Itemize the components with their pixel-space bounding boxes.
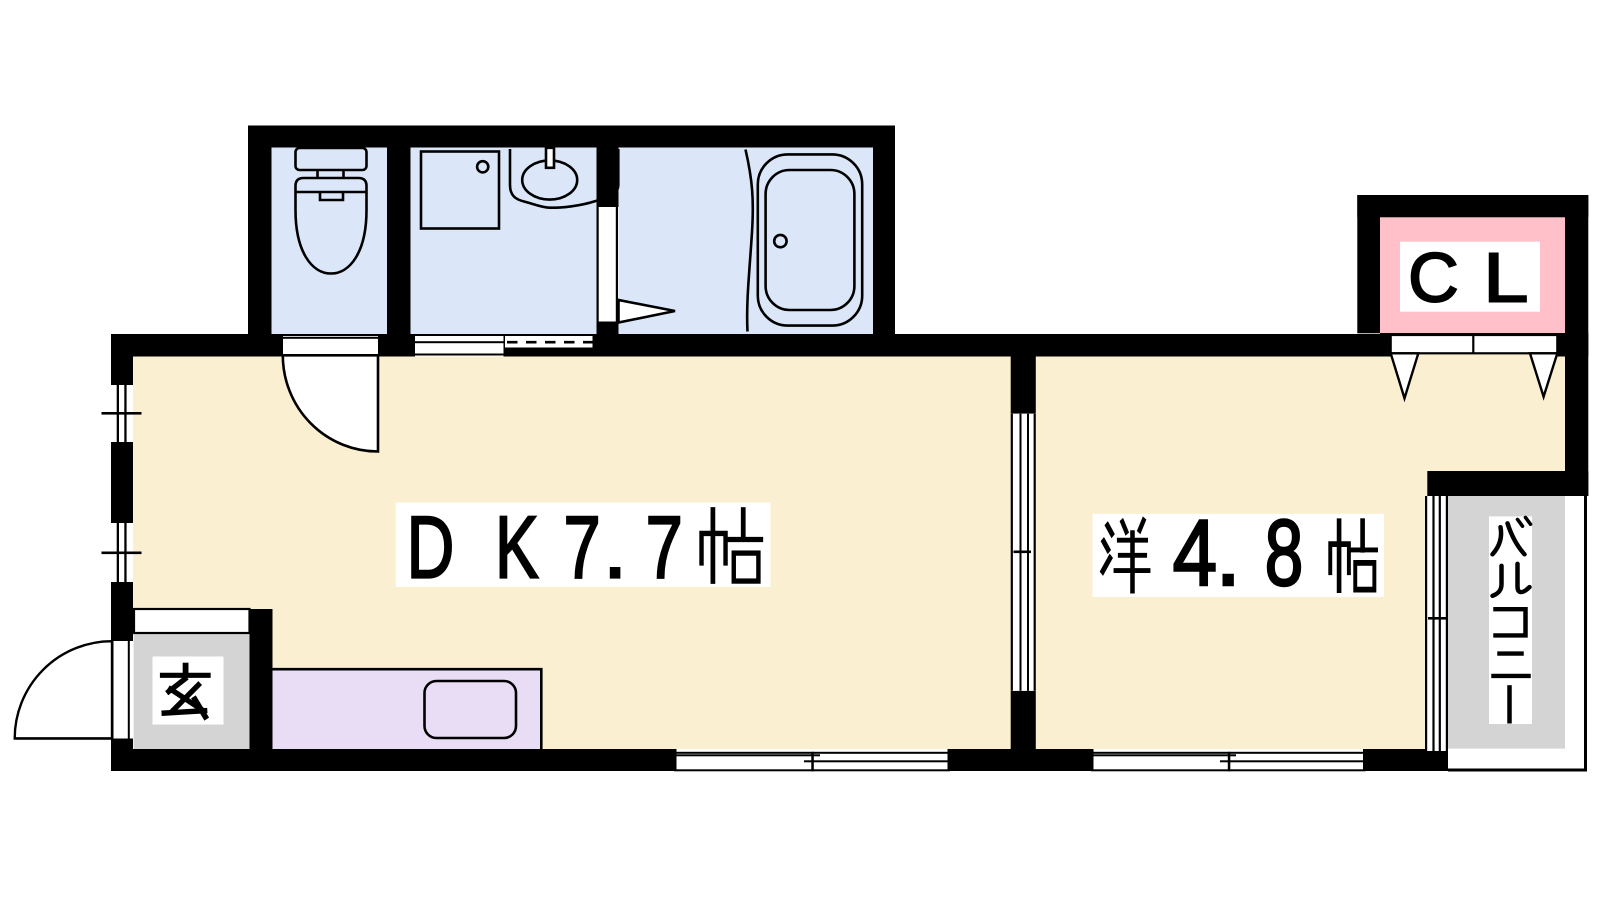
svg-text:L: L	[1483, 239, 1528, 317]
svg-text:.: .	[1215, 500, 1241, 605]
svg-text:4: 4	[1173, 501, 1217, 606]
svg-text:K: K	[495, 499, 539, 597]
svg-text:8: 8	[1265, 500, 1304, 606]
svg-text:.: .	[603, 497, 627, 596]
svg-text:D: D	[407, 499, 455, 596]
svg-text:C: C	[1408, 239, 1459, 317]
svg-text:7: 7	[646, 497, 683, 596]
svg-text:7: 7	[564, 497, 601, 596]
